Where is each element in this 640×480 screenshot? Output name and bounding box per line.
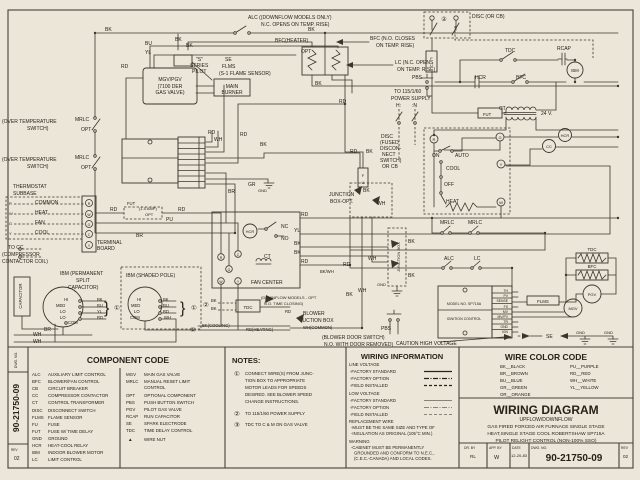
- wiring_information-text-6: -FACTORY STANDARD: [350, 398, 396, 403]
- schematic-text-202: (BLOWER DOOR SWITCH): [322, 335, 385, 341]
- schematic-text-189: (DOWNFLOW MODELS - OPT: [261, 295, 317, 300]
- schematic-text-165: CT: [264, 254, 271, 260]
- schematic-text-176: JUNCTION: [329, 192, 355, 198]
- schematic-text-14: BK: [186, 43, 193, 49]
- schematic-text-130: GND: [258, 188, 267, 193]
- side_strip-text-2: REV: [11, 448, 18, 452]
- schematic-text-114: BOARD: [97, 246, 115, 252]
- schematic-text-131: BR: [228, 189, 235, 195]
- gas-valve-label: MGV/PGV: [158, 77, 182, 83]
- wire_color_code-text-7: RD__RED: [570, 371, 591, 376]
- schematic-text-50: PBS: [412, 75, 423, 81]
- schematic-text-76: ALC: [444, 256, 454, 262]
- schematic-text-37: POWER SUPPLY: [391, 96, 431, 102]
- wiring_information-text-7: -FACTORY OPTION: [350, 405, 389, 410]
- wiring_information-text-4: -FIELD INSTALLED: [350, 383, 388, 388]
- component_code-text-2: AUXILIARY LIMIT CONTROL: [48, 372, 106, 377]
- component_code-text-35: PUSH BUTTON SWITCH: [144, 400, 194, 405]
- schematic-text-181: BK: [408, 239, 415, 245]
- schematic-text-85: MV/PV: [497, 315, 508, 319]
- schematic-text-198: RD(HEATING): [246, 327, 274, 332]
- schematic-text-59: BFC: [516, 75, 526, 81]
- wiring_information-text-10: -MUST BE THE SAME SIZE AND TYPE OF: [351, 425, 435, 430]
- schematic-text-74: MRLC: [440, 220, 455, 226]
- schematic-text-157: RD: [163, 309, 169, 314]
- notes-text-7: ②: [234, 411, 240, 418]
- schematic-text-88: IGN: [502, 330, 509, 334]
- component_code-text-33: OPTIONAL COMPONENT: [144, 393, 196, 398]
- schematic-text-156: BU: [163, 303, 169, 308]
- schematic-text-61: CT: [499, 106, 506, 112]
- title_block-text-6: RL: [470, 454, 476, 459]
- notes-title: NOTES:: [232, 356, 260, 365]
- schematic-text-17: PILOT: [192, 69, 206, 75]
- schematic-text-41: BK: [366, 149, 373, 155]
- schematic-text-163: NC: [281, 224, 289, 230]
- notes-text-9: ③: [234, 422, 240, 429]
- schematic-text-11: YL: [145, 50, 151, 56]
- component_code-text-5: CB: [32, 386, 38, 391]
- schematic-text-128: BK: [260, 142, 267, 148]
- component_code-text-40: SE: [126, 421, 132, 426]
- schematic-text-171: RD: [301, 212, 309, 218]
- schematic-text-101: COMMON: [35, 200, 59, 206]
- component_code-text-32: OPT: [126, 393, 135, 398]
- schematic-text-162: HCR: [246, 229, 255, 234]
- line-style-samples: [424, 372, 452, 415]
- schematic-text-23: GAS VALVE): [156, 90, 185, 96]
- component_code-text-13: FLMS: [32, 415, 44, 420]
- component_code-text-15: FU: [32, 422, 38, 427]
- wiring-diagram-title: WIRING DIAGRAM: [493, 403, 598, 417]
- component_code-text-19: GND: [32, 436, 42, 441]
- schematic-text-197: BK(COOLING): [202, 323, 230, 328]
- notes-text-4: MOTOR LEADS FOR SPEEDS: [245, 385, 306, 390]
- schematic-text-97: GND: [604, 330, 613, 335]
- schematic-text-199: BLOWER: [303, 311, 325, 317]
- ibm-label: IBM: [571, 68, 579, 73]
- component_code-text-8: COMPRESSOR CONTACTOR: [48, 393, 108, 398]
- notes-text-3: TION BOX TO APPROPRIATE: [245, 378, 305, 383]
- schematic-text-178: BK: [363, 188, 370, 194]
- schematic-text-144: }: [104, 300, 110, 317]
- component_code-text-42: TDC: [126, 428, 135, 433]
- component_code-text-43: TIME DELAY CONTROL: [144, 428, 193, 433]
- notes-text-2: CONNECT WIRE(S) FROM JUNC-: [245, 371, 314, 376]
- bfc-heater: [576, 270, 608, 280]
- title_block-text-10: 12-20-83: [511, 453, 528, 458]
- schematic-text-158: WH: [164, 315, 171, 320]
- schematic-text-80: TH: [503, 289, 508, 293]
- component_code-text-24: INDOOR BLOWER MOTOR: [48, 450, 103, 455]
- schematic-text-39: :N: [412, 103, 417, 109]
- schematic-text-191: RD: [285, 309, 291, 314]
- title_block-text-3: HEAT,SINGLE STAGE COOL ROBERTSHAW SP715A: [487, 431, 605, 437]
- caution-label: CAUTION HIGH VOLTAGE: [396, 341, 457, 347]
- schematic-text-204: PBS: [381, 326, 392, 332]
- schematic-text-124: BR: [136, 233, 143, 239]
- schematic-text-121: RD: [110, 207, 118, 213]
- schematic-text-48: F: [362, 173, 365, 178]
- wiring_information-text-9: REPLACEMENT WIRE: [349, 419, 394, 424]
- wire_color_code-text-4: GR__GREEN: [500, 385, 527, 390]
- drawing-number-side: 90-21750-09: [11, 384, 21, 432]
- title_block-text-8: W: [494, 455, 500, 461]
- schematic-text-116: (COMPRESSOR: [2, 252, 40, 258]
- schematic-text-13: BK: [175, 37, 182, 43]
- notes-text-6: CHANGE INSTRUCTIONS.: [245, 399, 299, 404]
- schematic-text-81: PV: [503, 294, 508, 298]
- component_code-text-38: RCAP: [126, 414, 138, 419]
- component_code-text-23: IBM: [32, 450, 40, 455]
- component_code-text-37: PILOT GAS VALVE: [144, 407, 182, 412]
- component_code-text-26: LIMIT CONTROL: [48, 457, 82, 462]
- schematic-text-173: BK: [294, 241, 301, 247]
- schematic-text-122: RD: [178, 207, 186, 213]
- component_code-text-9: CT: [32, 400, 38, 405]
- schematic-text-136: MED: [56, 303, 65, 308]
- schematic-text-32: MRLC: [75, 155, 90, 161]
- wiring_information-text-3: -FACTORY OPTION: [350, 376, 389, 381]
- title_block-text-7: APP. BY: [489, 446, 502, 450]
- wire-color-code-title: WIRE COLOR CODE: [505, 352, 587, 362]
- schematic-text-65: Y: [500, 162, 503, 167]
- schematic-text-60: FUT: [483, 112, 492, 117]
- wiring_information-text-11: -INSULATION AS ORIGINAL (105°C MIN.): [351, 431, 433, 436]
- component_code-text-28: MAIN GAS VALVE: [144, 372, 180, 377]
- shaded-pole-motor-label: IBM (SHADED POLE): [126, 273, 176, 279]
- schematic-text-75: MRLC: [468, 220, 483, 226]
- schematic-text-71: HEAT: [446, 199, 459, 205]
- schematic-text-40: RD: [350, 149, 358, 155]
- schematic-text-104: G: [9, 221, 12, 226]
- component_code-text-16: FUSE: [48, 422, 60, 427]
- component_code-text-20: GROUND: [48, 436, 68, 441]
- to-cc-note: TO CC: [8, 245, 24, 251]
- notes-text-8: TO 115/1/60 POWER SUPPLY: [245, 411, 305, 416]
- schematic-text-58: HCR: [475, 75, 486, 81]
- schematic-text-77: LC: [474, 256, 481, 262]
- schematic-text-118: FUT: [127, 201, 136, 206]
- mgv-label: MGV: [568, 306, 577, 311]
- schematic-text-143: RD: [97, 315, 103, 320]
- schematic-text-54: U: [430, 63, 433, 68]
- ignition-model-label: MODEL NO. SP715A: [447, 302, 482, 306]
- title_block-text-11: DWG. NO.: [531, 446, 547, 450]
- wire-nut-icon: ▲: [128, 437, 133, 442]
- component_code-text-6: CIRCUIT BREAKER: [48, 386, 88, 391]
- title_block-text-9: DATE: [512, 446, 522, 450]
- wire_color_code-text-8: WH__WHITE: [570, 378, 596, 383]
- wiring_information-text-12: WARNING: [349, 439, 370, 444]
- schematic-text-95: SE: [546, 334, 553, 340]
- junction-box-opt: [350, 183, 392, 217]
- title-block-panel: WIRING DIAGRAMUPFLOW/DOWNFLOWGAS FIRED F…: [464, 403, 629, 464]
- schematic-text-141: BU: [97, 303, 103, 308]
- wiring_information-text-5: LOW VOLTAGE: [349, 391, 380, 396]
- component_code-text-21: HCR: [32, 443, 42, 448]
- schematic-text-55: TDC: [505, 48, 516, 54]
- schematic-text-125: RD: [208, 130, 216, 136]
- schematic-text-185: BK/WH: [320, 269, 334, 274]
- wiring-diagram-sheet: ALC ((DOWNFLOW MODELS ONLY)N.C. OPENS ON…: [0, 0, 640, 480]
- drawing-number: 90-21750-09: [546, 453, 603, 464]
- title_block-text-1: UPFLOW/DOWNFLOW: [519, 417, 572, 423]
- schematic-text-12: RD: [121, 64, 129, 70]
- schematic-text-148: WH: [33, 332, 42, 338]
- title_block-text-4: PILOT RELIGHT CONTROL (NON-100% SSO): [496, 438, 597, 444]
- schematic-text-105: FAN: [35, 220, 45, 226]
- schematic-text-92: TDC: [587, 247, 596, 252]
- schematic-text-31: SWITCH): [27, 164, 49, 170]
- rcap-label: RCAP: [557, 46, 572, 52]
- notes-text-1: ①: [234, 371, 240, 378]
- schematic-text-154: COM: [130, 315, 140, 320]
- title_block-text-14: 02: [623, 454, 629, 459]
- bfc-note: BFC (N.O. CLOSES: [370, 36, 416, 42]
- component-code-panel: COMPONENT CODEALCAUXILIARY LIMIT CONTROL…: [32, 355, 196, 462]
- schematic-text-138: LO: [60, 315, 66, 320]
- schematic-text-190: N.O. TIME CLOSING): [264, 301, 304, 306]
- schematic-text-4: OPT: [301, 49, 311, 55]
- component_code-text-17: FUT: [32, 429, 41, 434]
- component_code-text-7: CC: [32, 393, 38, 398]
- schematic-text-120: OPT: [145, 212, 154, 217]
- component_code-text-11: DISC: [32, 408, 43, 413]
- schematic-text-62: 24 V.: [541, 111, 552, 117]
- schematic-text-19: FLMS: [222, 64, 236, 70]
- flms-label: FLMS: [537, 299, 549, 304]
- title_block-text-2: GAS FIRED FORCED AIR FURNACE SINGLE STAG…: [487, 424, 604, 430]
- component_code-text-14: FLAME SENSOR: [48, 415, 82, 420]
- over-temp-switch-2: (OVER TEMPERATURE: [2, 157, 57, 163]
- wiring_information-text-2: -FACTORY STANDARD: [350, 369, 396, 374]
- component_code-text-41: SPARK ELECTRODE: [144, 421, 187, 426]
- schematic-text-153: LO: [134, 309, 140, 314]
- schematic-text-201: WH(COMMON): [303, 325, 333, 330]
- schematic-text-200: JUCTION BOX: [300, 318, 334, 324]
- schematic-text-34: BK: [315, 81, 322, 87]
- schematic-text-67: ON: [432, 153, 440, 159]
- schematic-text-27: SWITCH): [27, 126, 49, 132]
- tdc-heater: [576, 253, 608, 263]
- schematic-text-149: WH: [33, 339, 42, 345]
- notes-text-10: TDC TO C & M ON GAS VALVE: [245, 422, 308, 427]
- schematic-text-107: COOL: [35, 230, 49, 236]
- wiring_information-text-1: LINE VOLTAGE: [349, 362, 380, 367]
- schematic-text-66: W: [499, 200, 503, 205]
- schematic-text-73: CC: [546, 144, 552, 149]
- schematic-text-10: BU: [145, 41, 152, 47]
- psc-motor-label: IBM (PERMANENT: [60, 271, 103, 277]
- schematic-text-106: Y: [9, 231, 12, 236]
- schematic-text-151: HI: [137, 297, 141, 302]
- schematic-text-110: G: [88, 223, 91, 227]
- schematic-canvas: ALC ((DOWNFLOW MODELS ONLY)N.C. OPENS ON…: [0, 0, 640, 480]
- side_strip-text-3: 02: [14, 456, 20, 462]
- schematic-text-100: R: [9, 201, 12, 206]
- schematic-text-194: BK: [211, 298, 217, 303]
- wiring-information-title: WIRING INFORMATION: [361, 352, 443, 361]
- component_code-text-4: BLOWER/FAN CONTROL: [48, 379, 100, 384]
- component_code-text-3: BFC: [32, 379, 41, 384]
- schematic-text-35: RD: [339, 99, 347, 105]
- schematic-text-25: BURNER: [221, 90, 243, 96]
- schematic-text-51: ②: [441, 16, 447, 23]
- component_code-text-29: MRLC: [126, 379, 138, 384]
- schematic-text-137: LO: [60, 309, 66, 314]
- schematic-text-193: ②: [203, 302, 209, 309]
- schematic-text-196: ①: [190, 327, 196, 334]
- schematic-text-135: HI: [64, 297, 68, 302]
- schematic-text-99: SUBBASE: [13, 191, 37, 197]
- schematic-text-20: (S-1 FLAME SENSOR): [219, 71, 271, 77]
- ignition-control-2: [438, 286, 512, 338]
- schematic-text-29: OPT: [81, 127, 91, 133]
- wiring_information-text-8: -FIELD INSTALLED: [350, 412, 388, 417]
- wire_color_code-text-5: OR__ORANGE: [500, 392, 531, 397]
- schematic-text-139: COM: [68, 320, 78, 325]
- schematic-text-87: GND: [500, 325, 508, 329]
- thermostat-subbase-label: THERMOSTAT: [13, 184, 47, 190]
- power-supply-note: TO 115/1/60: [394, 89, 422, 95]
- wiring_information-text-14: GROUNDED AND CONFORM TO N.E.C.,: [354, 451, 435, 456]
- schematic-text-86: TR: [503, 320, 508, 324]
- over-temp-switch-1: (OVER TEMPERATURE: [2, 119, 57, 125]
- schematic-text-168: G: [228, 268, 231, 272]
- schematic-text-63: R: [433, 137, 436, 142]
- schematic-text-195: BK: [211, 306, 217, 311]
- schematic-text-93: BFC: [588, 264, 597, 269]
- schematic-text-64: G: [498, 135, 501, 140]
- alc-note: ALC ((DOWNFLOW MODELS ONLY): [248, 15, 332, 21]
- schematic-text-18: SE: [225, 57, 232, 63]
- schematic-text-96: GND: [576, 330, 585, 335]
- component_code-text-25: LC: [32, 457, 38, 462]
- schematic-text-188: WH: [358, 288, 367, 294]
- schematic-text-72: HCR: [561, 133, 570, 138]
- schematic-text-133: SPLIT: [76, 278, 90, 284]
- capacitor-label: CAPACITOR: [18, 283, 23, 308]
- wire_color_code-text-9: YL__YELLOW: [570, 385, 599, 390]
- schematic-text-187: BK: [346, 292, 353, 298]
- schematic-text-164: NO: [281, 236, 289, 242]
- schematic-text-172: YL: [294, 228, 300, 234]
- fan-center-label: FAN CENTER: [251, 280, 283, 286]
- component_code-text-31: CONTROL: [144, 385, 166, 390]
- side-strip-panel: DWG. NO.90-21750-09REV02: [11, 352, 21, 462]
- schematic-text-84: MV: [503, 310, 509, 314]
- component_code-text-27: MGV: [126, 372, 136, 377]
- schematic-text-83: FS: [504, 305, 509, 309]
- schematic-text-123: PU: [166, 217, 173, 223]
- schematic-text-159: }: [180, 300, 186, 317]
- component_code-text-12: DISCONNECT SWITCH: [48, 408, 95, 413]
- schematic-text-184: RD: [343, 262, 351, 268]
- schematic-text-47: OR CB: [382, 164, 399, 170]
- schematic-text-192: TDC: [243, 305, 252, 310]
- schematic-text-103: HEAT: [35, 210, 48, 216]
- side_strip-text-0: DWG. NO.: [14, 352, 18, 368]
- component_code-text-22: HEAT-COOL RELAY: [48, 443, 88, 448]
- schematic-text-186: GND: [377, 282, 386, 287]
- wiring_information-text-13: -CABINET MUST BE PERMANENTLY: [351, 445, 424, 450]
- schematic-text-129: GR: [248, 182, 256, 188]
- schematic-text-102: W: [9, 211, 13, 216]
- component_code-text-18: FUSE W/ TIME DELAY: [48, 429, 93, 434]
- schematic-text-155: BK: [163, 297, 169, 302]
- component_code-text-45: WIRE NUT: [144, 437, 166, 442]
- schematic-text-9: BK: [105, 27, 112, 33]
- schematic-text-33: OPT: [81, 165, 91, 171]
- schematic-text-152: MED: [131, 303, 140, 308]
- wire_color_code-text-6: PU__PURPLE: [570, 364, 599, 369]
- schematic-text-175: RD: [301, 259, 309, 265]
- schematic-text-134: CAPACITOR): [68, 285, 99, 291]
- notes-text-5: DESIRED. SEE BLOWER SPEED: [245, 392, 312, 397]
- schematic-text-28: MRLC: [75, 117, 90, 123]
- lc-note: LC (N.C. OPENS: [395, 60, 434, 66]
- schematic-text-38: H:: [396, 103, 401, 109]
- schematic-text-203: N.O. WITH DOOR REMOVED): [324, 342, 394, 348]
- component_code-text-36: PGV: [126, 407, 135, 412]
- schematic-text-127: RD: [240, 132, 248, 138]
- wire_color_code-text-2: BR__BROWN: [500, 371, 528, 376]
- schematic-text-179: WH: [377, 201, 386, 207]
- component-code-title: COMPONENT CODE: [87, 355, 170, 365]
- schematic-text-82: SENSE: [497, 299, 509, 303]
- wire_color_code-text-3: BU__BLUE: [500, 378, 523, 383]
- schematic-text-69: COOL: [446, 166, 460, 172]
- title_block-text-13: REV: [621, 446, 629, 450]
- schematic-text-182: BK: [408, 273, 415, 279]
- schematic-text-180: JUNCTION BOX: [396, 242, 401, 272]
- schematic-text-140: BK: [97, 297, 103, 302]
- schematic-text-49: U: [362, 180, 365, 185]
- schematic-text-2: BK: [308, 27, 315, 33]
- schematic-text-183: WH: [368, 256, 377, 262]
- dashed-wires: [14, 26, 593, 310]
- component_code-text-30: MANUAL RESET LIMIT: [144, 379, 191, 384]
- schematic-text-68: AUTO: [455, 153, 469, 159]
- schematic-text-145: ①: [114, 305, 120, 312]
- schematic-text-177: BOX-OPT.: [330, 199, 353, 205]
- schematic-text-119: (1.5 AMP): [139, 206, 157, 211]
- wiring-information-panel: WIRING INFORMATIONLINE VOLTAGE-FACTORY S…: [349, 352, 443, 461]
- ignition-control-1: [122, 137, 205, 188]
- pgv-label: PGV: [588, 292, 597, 297]
- schematic-text-117: CONTACTOR COIL): [2, 259, 48, 265]
- schematic-text-174: BK: [294, 250, 301, 256]
- schematic-text-70: OFF: [444, 182, 454, 188]
- schematic-text-6: ON TEMP. RISE): [376, 43, 414, 49]
- schematic-labels: ALC ((DOWNFLOW MODELS ONLY)N.C. OPENS ON…: [2, 14, 613, 348]
- disc-label: DISC (OR CB): [472, 14, 505, 20]
- bfc-heater-label: BFC(HEATER): [275, 38, 309, 44]
- wiring_information-text-15: (C.E.C.-CANADA) AND LOCAL CODES.: [354, 456, 432, 461]
- schematic-text-79: IGNITION CONTROL: [447, 317, 482, 321]
- component_code-text-10: CONTROL TRANSFORMER: [48, 400, 104, 405]
- component_code-text-34: PBS: [126, 400, 135, 405]
- wire_color_code-text-1: BK__BLACK: [500, 364, 525, 369]
- title_block-text-5: DR. BY: [464, 446, 476, 450]
- wire-color-code-panel: WIRE COLOR CODEBK__BLACKBR__BROWNBU__BLU…: [500, 352, 599, 397]
- schematic-text-160: ①: [191, 305, 197, 312]
- schematic-text-1: N.C. OPENS ON TEMP. RISE): [261, 22, 330, 28]
- schematic-text-147: BR: [44, 327, 51, 333]
- component_code-text-39: RUN CAPACITOR: [144, 414, 180, 419]
- schematic-text-126: WH: [214, 137, 223, 143]
